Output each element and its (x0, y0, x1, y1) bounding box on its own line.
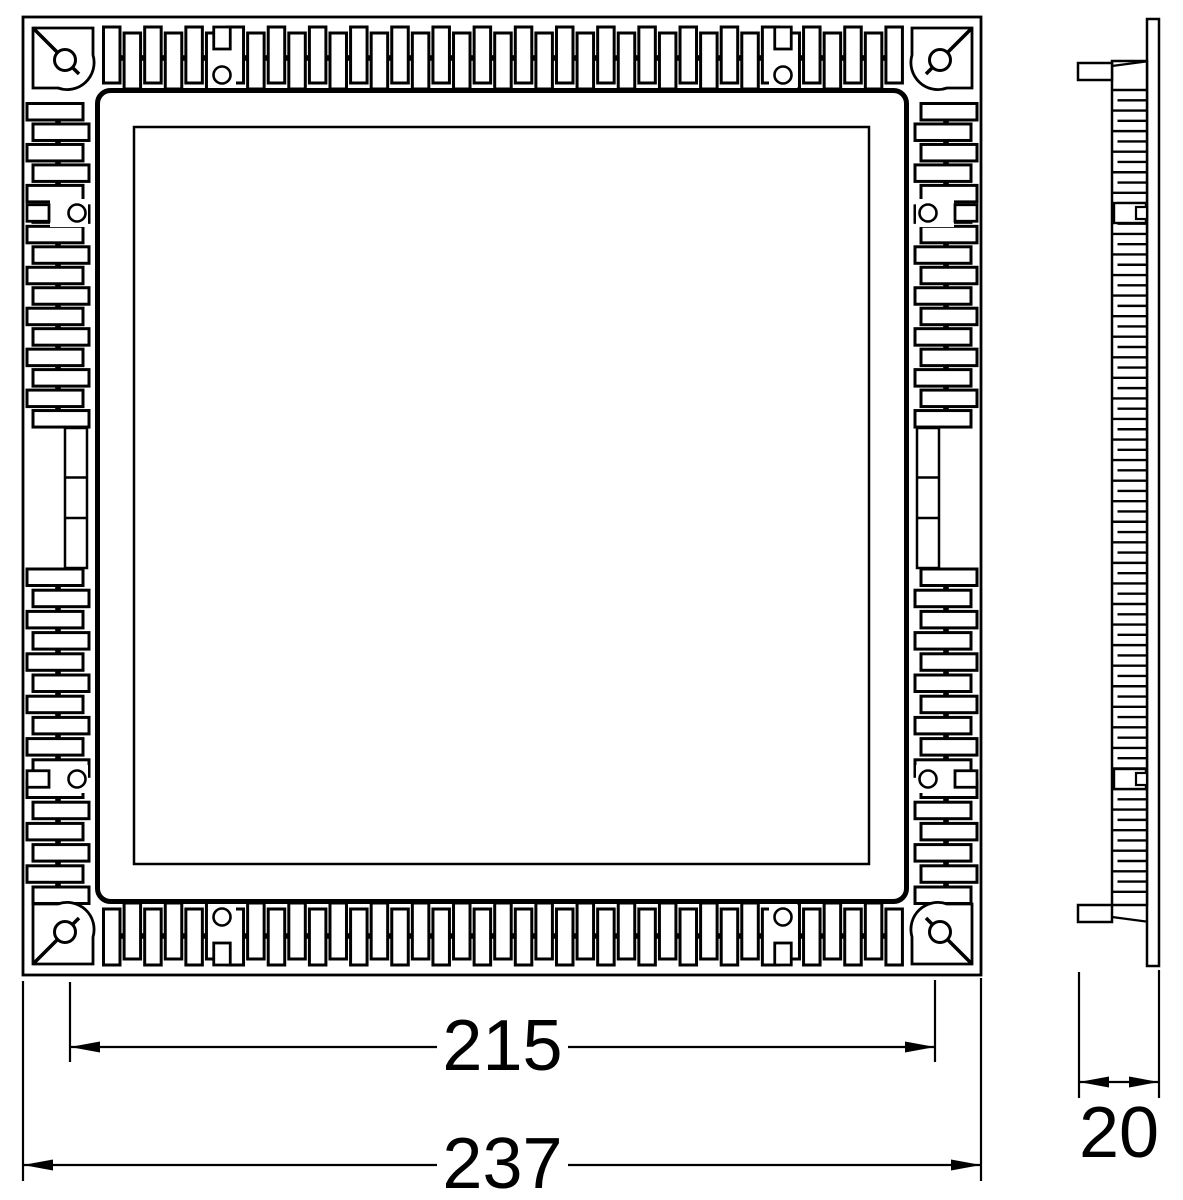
fin (33, 124, 89, 141)
arrowhead-right (1129, 1077, 1159, 1088)
fin (433, 909, 450, 965)
fin (33, 329, 89, 346)
fin (165, 903, 182, 959)
fin (27, 308, 83, 325)
corner-clip-bottom-right (911, 902, 972, 964)
fin (248, 903, 265, 959)
fin (721, 909, 738, 965)
fin-stub (775, 943, 792, 965)
fin (454, 903, 471, 959)
fin (921, 823, 977, 840)
fin-stub (955, 205, 977, 222)
fin (27, 104, 83, 121)
fin (412, 33, 429, 89)
fin (845, 909, 862, 965)
fin-stub (27, 205, 49, 222)
fin (495, 33, 512, 89)
arrowhead-left (70, 1042, 100, 1053)
outer-flange-square (23, 17, 981, 975)
corner-clip-top-right (911, 28, 972, 90)
corner-clip-top-left (33, 28, 94, 90)
edge-screw-hole (920, 205, 937, 222)
fin (577, 33, 594, 89)
fin (915, 247, 971, 263)
fin (309, 27, 326, 83)
edge-screw-hole (775, 67, 792, 84)
edge-screw-hole (69, 771, 86, 788)
fin (824, 903, 841, 959)
dimension-overall-label: 237 (442, 1124, 562, 1200)
fin (474, 27, 491, 83)
corner-screw-circle (55, 922, 76, 943)
fin (921, 696, 977, 713)
fin-stub (214, 27, 231, 49)
fin (915, 165, 971, 182)
fin-stub (955, 771, 977, 788)
fin (598, 27, 615, 83)
fin (742, 33, 759, 89)
fin (27, 267, 83, 284)
fin (33, 370, 89, 387)
face-flange-profile (1147, 19, 1159, 966)
arrowhead-right (905, 1042, 935, 1053)
screw-boss-detail (1136, 773, 1147, 785)
arrowhead-left (23, 1160, 53, 1171)
fin (33, 288, 89, 305)
fin (27, 569, 83, 586)
drawing-canvas: 215 237 20 (0, 0, 1183, 1200)
fin (824, 33, 841, 89)
fin (556, 909, 573, 965)
corner-screw-circle (930, 50, 951, 71)
corner-clip-bottom-left (33, 902, 94, 964)
fin (915, 717, 971, 734)
dimension-cutout: 215 (70, 1006, 935, 1086)
fin (309, 909, 326, 965)
dimension-depth-label: 20 (1079, 1093, 1159, 1173)
fin (27, 611, 83, 628)
fin (33, 165, 89, 182)
edge-screw-hole (214, 909, 231, 926)
fin (474, 909, 491, 965)
screw-boss-detail (1136, 207, 1147, 219)
fin (865, 33, 882, 89)
fin (915, 329, 971, 346)
mounting-plate (917, 428, 939, 568)
fin-stub (27, 771, 49, 788)
dimension-depth: 20 (1079, 1077, 1159, 1174)
fin (915, 802, 971, 819)
edge-screw-hole (69, 205, 86, 222)
side-view (1078, 19, 1159, 966)
fin (921, 866, 977, 883)
fin (915, 675, 971, 692)
fin (556, 27, 573, 83)
corner-screw-circle (930, 922, 951, 943)
fin (865, 903, 882, 959)
fin (33, 247, 89, 263)
fin (248, 33, 265, 89)
fin (680, 27, 697, 83)
fin (27, 739, 83, 756)
fin (845, 27, 862, 83)
fin (536, 903, 553, 959)
fin (495, 903, 512, 959)
fin (186, 909, 203, 965)
fin (639, 909, 656, 965)
fin (392, 27, 409, 83)
fin (165, 33, 182, 89)
fin (659, 33, 676, 89)
fin (145, 27, 162, 83)
fin (27, 390, 83, 407)
fin (921, 144, 977, 161)
mounting-plate-right (917, 428, 939, 568)
fin (804, 27, 821, 83)
fin (27, 654, 83, 671)
fin (921, 654, 977, 671)
arrowhead-right (951, 1160, 981, 1171)
mounting-tab-top (1078, 63, 1112, 80)
fin (598, 909, 615, 965)
fin (371, 903, 388, 959)
mounting-plate-left (65, 428, 87, 568)
fin (268, 27, 285, 83)
fin (639, 27, 656, 83)
fin (27, 823, 83, 840)
fin (27, 226, 83, 243)
fin (351, 909, 368, 965)
fin (33, 633, 89, 650)
fin (721, 27, 738, 83)
corner-screw-circle (55, 50, 76, 71)
fin (186, 27, 203, 83)
fin (33, 590, 89, 607)
fin (701, 33, 718, 89)
fin (921, 739, 977, 756)
arrowhead-left (1079, 1077, 1109, 1088)
fin (27, 696, 83, 713)
front-view (23, 17, 981, 975)
fin (915, 288, 971, 305)
fin (921, 226, 977, 243)
fin (33, 845, 89, 862)
fin (515, 909, 532, 965)
edge-screw-hole (775, 909, 792, 926)
fin (392, 909, 409, 965)
fin (618, 903, 635, 959)
fin (27, 866, 83, 883)
fin (915, 845, 971, 862)
fin (921, 104, 977, 121)
fin (921, 611, 977, 628)
fin (289, 33, 306, 89)
fin (27, 144, 83, 161)
fin (33, 802, 89, 819)
fin (915, 411, 971, 428)
edge-screw-hole (920, 771, 937, 788)
fin (921, 569, 977, 586)
fin (33, 675, 89, 692)
fin (33, 887, 89, 904)
fin-stub (775, 27, 792, 49)
fin (618, 33, 635, 89)
fin (921, 308, 977, 325)
fin (742, 903, 759, 959)
fin (371, 33, 388, 89)
fin (915, 887, 971, 904)
body-chamfer-bottom (1112, 917, 1146, 922)
fin (921, 267, 977, 284)
fin (921, 390, 977, 407)
fin-stub (214, 943, 231, 965)
fin (921, 349, 977, 366)
fin (145, 909, 162, 965)
fin (33, 717, 89, 734)
fin (351, 27, 368, 83)
fin (915, 370, 971, 387)
fin (659, 903, 676, 959)
fin (915, 590, 971, 607)
fin (433, 27, 450, 83)
fin (268, 909, 285, 965)
fin (577, 903, 594, 959)
fin (886, 27, 903, 83)
fin (104, 27, 121, 83)
fin (33, 411, 89, 428)
fin (915, 633, 971, 650)
dimension-cutout-label: 215 (442, 1006, 562, 1086)
dimension-overall: 237 (23, 1124, 981, 1200)
fin (104, 909, 121, 965)
fin (701, 903, 718, 959)
mounting-plate (65, 428, 87, 568)
fin (124, 903, 141, 959)
fin (330, 33, 347, 89)
fin (330, 903, 347, 959)
fin (680, 909, 697, 965)
edge-screw-hole (214, 67, 231, 84)
fin (915, 124, 971, 141)
fin (886, 909, 903, 965)
fin (124, 33, 141, 89)
mounting-tab-bottom (1078, 905, 1112, 922)
technical-drawing-svg: 215 237 20 (0, 0, 1183, 1200)
dimensions: 215 237 20 (23, 970, 1159, 1200)
fin (536, 33, 553, 89)
fin (27, 349, 83, 366)
fin (515, 27, 532, 83)
fin (289, 903, 306, 959)
fin (412, 903, 429, 959)
fin (454, 33, 471, 89)
fin (804, 909, 821, 965)
